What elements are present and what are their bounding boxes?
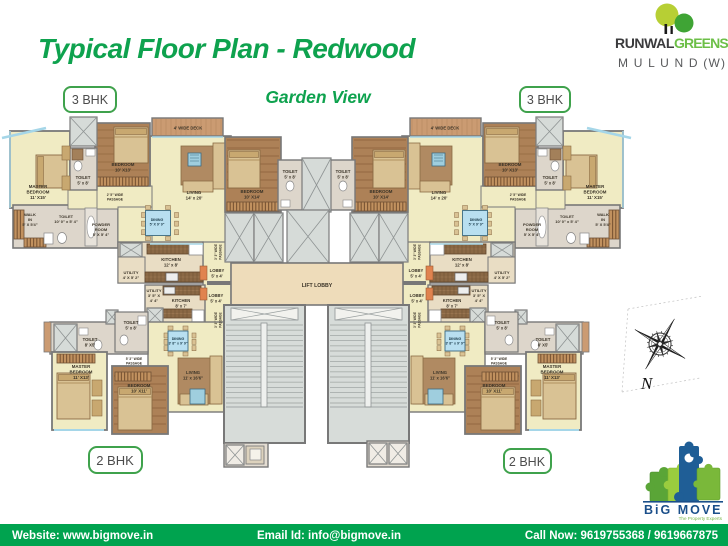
svg-text:BEDROOM: BEDROOM bbox=[541, 370, 564, 375]
svg-text:12' x 8': 12' x 8' bbox=[455, 263, 469, 268]
svg-text:5' X 5' 4": 5' X 5' 4" bbox=[93, 232, 110, 237]
svg-text:M U L U N D (W): M U L U N D (W) bbox=[618, 56, 726, 70]
svg-text:10' X13': 10' X13' bbox=[115, 168, 131, 173]
svg-text:10' X13': 10' X13' bbox=[502, 168, 518, 173]
svg-text:4' X 5' 2": 4' X 5' 2" bbox=[494, 275, 511, 280]
svg-text:PASSAGE: PASSAGE bbox=[510, 197, 527, 201]
svg-text:N: N bbox=[640, 374, 654, 393]
svg-text:11' X15': 11' X15' bbox=[587, 195, 603, 200]
svg-text:BEDROOM: BEDROOM bbox=[70, 370, 93, 375]
svg-text:PASSAGE: PASSAGE bbox=[491, 361, 508, 365]
svg-text:LIFT LOBBY: LIFT LOBBY bbox=[302, 283, 333, 289]
svg-text:BiG MOVE: BiG MOVE bbox=[644, 503, 723, 517]
svg-text:11' X13': 11' X13' bbox=[544, 375, 560, 380]
svg-text:4' WIDE DECK: 4' WIDE DECK bbox=[174, 126, 202, 131]
svg-text:TOILET: TOILET bbox=[283, 169, 298, 174]
svg-text:LOBBY: LOBBY bbox=[210, 268, 225, 273]
svg-text:5' x 8': 5' x 8' bbox=[77, 180, 88, 185]
svg-text:10' X11': 10' X11' bbox=[486, 389, 502, 394]
svg-text:TOILET: TOILET bbox=[336, 169, 351, 174]
svg-text:4' X 5' 2": 4' X 5' 2" bbox=[123, 275, 140, 280]
svg-text:LIVING: LIVING bbox=[186, 370, 200, 375]
svg-text:2 BHK: 2 BHK bbox=[509, 455, 546, 469]
svg-text:PASSAGE: PASSAGE bbox=[107, 197, 124, 201]
svg-text:2 BHK: 2 BHK bbox=[96, 453, 134, 468]
svg-text:BEDROOM: BEDROOM bbox=[370, 189, 393, 194]
svg-text:5' x 8': 5' x 8' bbox=[125, 325, 136, 330]
svg-text:TOILET: TOILET bbox=[536, 337, 551, 342]
svg-text:TOILET: TOILET bbox=[76, 175, 91, 180]
svg-text:14' x 20': 14' x 20' bbox=[431, 196, 448, 201]
svg-text:4' 4": 4' 4" bbox=[475, 298, 484, 303]
svg-text:3' 8" x 9' 9": 3' 8" x 9' 9" bbox=[445, 342, 464, 346]
svg-text:TOILET: TOILET bbox=[495, 320, 510, 325]
svg-text:5' 3" WIDE: 5' 3" WIDE bbox=[126, 357, 143, 361]
svg-text:MASTER: MASTER bbox=[72, 364, 91, 369]
svg-text:5' 3" WIDE: 5' 3" WIDE bbox=[491, 357, 508, 361]
svg-text:3 BHK: 3 BHK bbox=[527, 93, 564, 107]
svg-text:MASTER: MASTER bbox=[543, 364, 562, 369]
svg-text:PASSAGE: PASSAGE bbox=[126, 361, 143, 365]
svg-text:10' X11': 10' X11' bbox=[131, 389, 147, 394]
svg-text:MASTER: MASTER bbox=[586, 184, 605, 189]
svg-text:TOILET: TOILET bbox=[83, 337, 98, 342]
svg-text:5' x 8': 5' x 8' bbox=[284, 174, 295, 179]
svg-text:The Property Experts: The Property Experts bbox=[679, 516, 723, 521]
svg-text:2' 5" WIDE: 2' 5" WIDE bbox=[510, 193, 527, 197]
svg-text:BEDROOM: BEDROOM bbox=[27, 190, 50, 195]
svg-text:11' x 16'6": 11' x 16'6" bbox=[183, 375, 203, 380]
svg-text:Typical Floor Plan - Redwood: Typical Floor Plan - Redwood bbox=[38, 33, 416, 64]
svg-text:4' WIDE DECK: 4' WIDE DECK bbox=[431, 126, 459, 131]
svg-text:PASSAGE: PASSAGE bbox=[417, 312, 421, 327]
svg-text:LIVING: LIVING bbox=[432, 190, 447, 195]
svg-text:KITCHEN: KITCHEN bbox=[443, 298, 462, 303]
svg-text:DINING: DINING bbox=[449, 337, 462, 341]
svg-text:BEDROOM: BEDROOM bbox=[112, 162, 135, 167]
svg-text:5' x 8': 5' x 8' bbox=[337, 174, 348, 179]
svg-text:5' x 4': 5' x 4' bbox=[210, 298, 221, 303]
svg-text:5' X 5'4": 5' X 5'4" bbox=[595, 222, 610, 227]
svg-text:14' x 20': 14' x 20' bbox=[186, 196, 203, 201]
svg-text:LIVING: LIVING bbox=[433, 370, 447, 375]
svg-text:5' X 5'4": 5' X 5'4" bbox=[22, 222, 37, 227]
svg-text:3 BHK: 3 BHK bbox=[72, 93, 109, 107]
svg-text:5' X 5' 4": 5' X 5' 4" bbox=[524, 232, 541, 237]
svg-text:11' X15': 11' X15' bbox=[30, 195, 46, 200]
svg-text:LOBBY: LOBBY bbox=[209, 293, 224, 298]
svg-text:TOILET: TOILET bbox=[124, 320, 139, 325]
svg-text:8' x 7': 8' x 7' bbox=[175, 303, 186, 308]
svg-text:5' x 8': 5' x 8' bbox=[544, 180, 555, 185]
svg-text:Garden View: Garden View bbox=[265, 87, 372, 107]
svg-text:BEDROOM: BEDROOM bbox=[584, 190, 607, 195]
svg-text:5' x 4': 5' x 4' bbox=[410, 273, 421, 278]
svg-text:10' X14': 10' X14' bbox=[373, 195, 389, 200]
svg-text:Email Id: info@bigmove.in: Email Id: info@bigmove.in bbox=[257, 530, 401, 542]
svg-text:5' X 9' 9": 5' X 9' 9" bbox=[469, 223, 484, 227]
svg-text:5' x 4': 5' x 4' bbox=[411, 298, 422, 303]
svg-text:PASSAGE: PASSAGE bbox=[218, 244, 222, 259]
svg-text:Website: www.bigmove.in: Website: www.bigmove.in bbox=[12, 530, 153, 542]
svg-text:10' 0" x 5' 4": 10' 0" x 5' 4" bbox=[555, 219, 579, 224]
svg-text:5' x 4': 5' x 4' bbox=[211, 273, 222, 278]
svg-text:8' x 7': 8' x 7' bbox=[446, 303, 457, 308]
svg-text:DINING: DINING bbox=[172, 337, 185, 341]
svg-text:11' X13': 11' X13' bbox=[73, 375, 89, 380]
svg-text:PASSAGE: PASSAGE bbox=[417, 244, 421, 259]
svg-text:DINING: DINING bbox=[470, 218, 483, 222]
svg-text:TOILET: TOILET bbox=[543, 175, 558, 180]
svg-text:Call Now: 9619755368 / 9619667: Call Now: 9619755368 / 9619667875 bbox=[525, 530, 719, 542]
svg-text:RUNWALGREENS: RUNWALGREENS bbox=[615, 35, 728, 51]
svg-text:PASSAGE: PASSAGE bbox=[218, 312, 222, 327]
svg-text:KITCHEN: KITCHEN bbox=[161, 257, 181, 262]
svg-text:DINING: DINING bbox=[151, 218, 164, 222]
svg-text:2' 5" WIDE: 2' 5" WIDE bbox=[107, 193, 124, 197]
svg-text:BEDROOM: BEDROOM bbox=[241, 189, 264, 194]
svg-text:MASTER: MASTER bbox=[29, 184, 48, 189]
svg-text:BEDROOM: BEDROOM bbox=[483, 383, 506, 388]
svg-text:10' 0" x 5' 4": 10' 0" x 5' 4" bbox=[54, 219, 78, 224]
svg-text:KITCHEN: KITCHEN bbox=[172, 298, 191, 303]
svg-text:8' X5': 8' X5' bbox=[538, 342, 549, 347]
svg-text:8' X5': 8' X5' bbox=[85, 342, 96, 347]
svg-text:LOBBY: LOBBY bbox=[410, 293, 425, 298]
svg-text:LIVING: LIVING bbox=[187, 190, 202, 195]
svg-text:4' 4": 4' 4" bbox=[150, 298, 159, 303]
svg-text:BEDROOM: BEDROOM bbox=[499, 162, 522, 167]
svg-text:LOBBY: LOBBY bbox=[409, 268, 424, 273]
svg-text:10' X14': 10' X14' bbox=[244, 195, 260, 200]
svg-text:12' x 8': 12' x 8' bbox=[164, 263, 178, 268]
svg-text:BEDROOM: BEDROOM bbox=[128, 383, 151, 388]
svg-text:11' x 16'6": 11' x 16'6" bbox=[430, 375, 450, 380]
svg-text:3' 8" x 9' 9": 3' 8" x 9' 9" bbox=[168, 342, 187, 346]
svg-text:5' x 8': 5' x 8' bbox=[496, 325, 507, 330]
svg-text:KITCHEN: KITCHEN bbox=[452, 257, 472, 262]
svg-text:5' X 9' 9": 5' X 9' 9" bbox=[150, 223, 165, 227]
